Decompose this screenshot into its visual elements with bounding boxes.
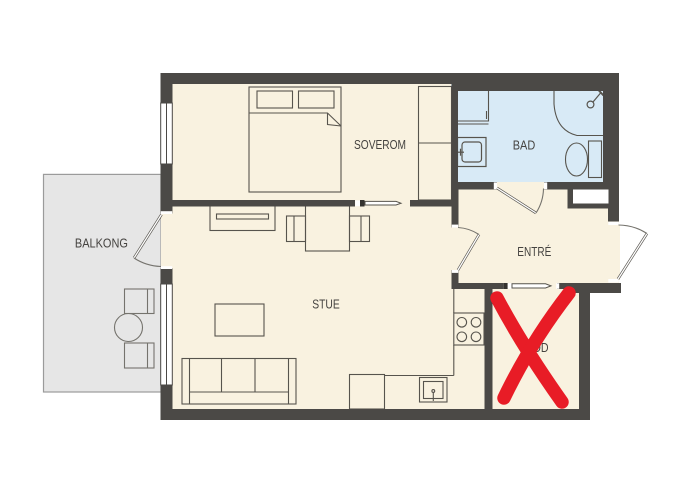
svg-text:BAD: BAD <box>513 138 536 153</box>
svg-text:BALKONG: BALKONG <box>75 236 128 251</box>
svg-text:ENTRÉ: ENTRÉ <box>517 244 551 259</box>
svg-text:SOVEROM: SOVEROM <box>354 137 406 152</box>
svg-text:STUE: STUE <box>312 297 340 312</box>
